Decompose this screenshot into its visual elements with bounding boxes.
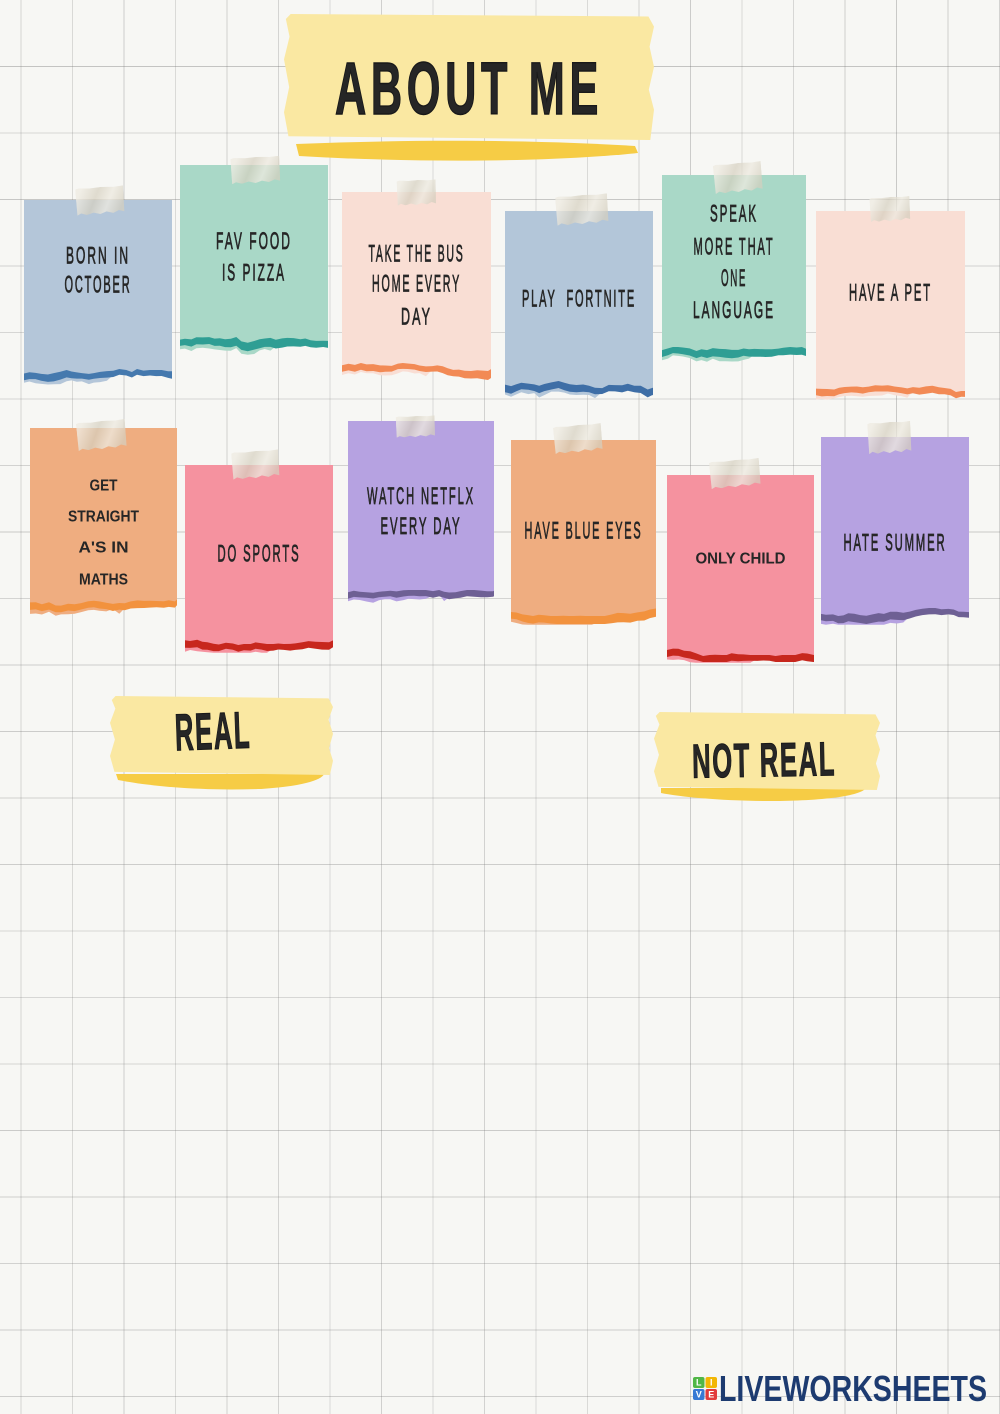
svg-text:L: L xyxy=(696,1378,702,1388)
svg-text:LIVEWORKSHEETS: LIVEWORKSHEETS xyxy=(719,1370,987,1409)
svg-text:FAV FOOD: FAV FOOD xyxy=(216,228,292,255)
svg-text:I: I xyxy=(710,1378,713,1388)
svg-text:E: E xyxy=(708,1390,714,1400)
svg-text:HAVE A PET: HAVE A PET xyxy=(849,280,932,307)
svg-text:NOT REAL: NOT REAL xyxy=(692,733,837,789)
svg-text:HOME EVERY: HOME EVERY xyxy=(372,271,461,298)
svg-text:GET: GET xyxy=(90,478,118,495)
svg-text:DO SPORTS: DO SPORTS xyxy=(218,541,301,568)
svg-text:HATE SUMMER: HATE SUMMER xyxy=(844,530,947,557)
svg-text:LANGUAGE: LANGUAGE xyxy=(693,297,775,324)
svg-text:EVERY DAY: EVERY DAY xyxy=(381,513,462,540)
svg-text:PLAY FORTNITE: PLAY FORTNITE xyxy=(522,286,636,313)
svg-text:OCTOBER: OCTOBER xyxy=(65,272,132,299)
svg-text:TAKE THE BUS: TAKE THE BUS xyxy=(369,241,465,268)
svg-text:WATCH NETFLX: WATCH NETFLX xyxy=(367,483,475,510)
svg-text:STRAIGHT: STRAIGHT xyxy=(68,509,139,526)
svg-text:DAY: DAY xyxy=(401,304,432,331)
svg-text:ONE: ONE xyxy=(721,265,747,292)
svg-text:ABOUT ME: ABOUT ME xyxy=(335,47,603,130)
svg-text:SPEAK: SPEAK xyxy=(710,201,758,228)
svg-text:BORN IN: BORN IN xyxy=(66,243,130,270)
svg-text:IS PIZZA: IS PIZZA xyxy=(222,260,286,287)
svg-text:A'S IN: A'S IN xyxy=(79,540,129,557)
svg-text:REAL: REAL xyxy=(174,702,252,763)
svg-text:V: V xyxy=(696,1390,702,1400)
svg-text:HAVE BLUE EYES: HAVE BLUE EYES xyxy=(525,518,643,545)
svg-text:MORE THAT: MORE THAT xyxy=(694,234,775,261)
svg-text:ONLY CHILD: ONLY CHILD xyxy=(696,551,786,568)
svg-text:MATHS: MATHS xyxy=(79,572,128,589)
